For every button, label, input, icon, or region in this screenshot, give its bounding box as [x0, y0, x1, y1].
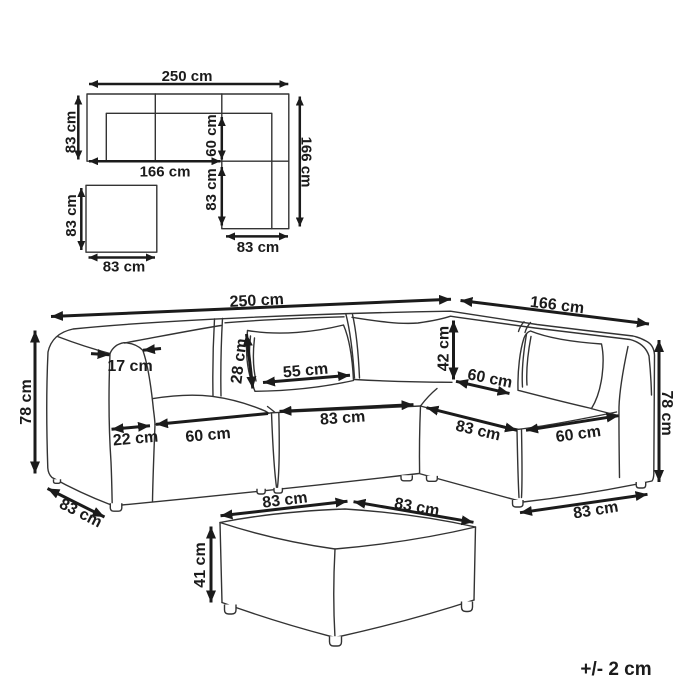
svg-text:+/- 2 cm: +/- 2 cm	[580, 659, 651, 680]
svg-text:166 cm: 166 cm	[140, 164, 191, 181]
svg-text:166 cm: 166 cm	[529, 294, 585, 317]
svg-text:60 cm: 60 cm	[203, 114, 220, 157]
svg-text:250 cm: 250 cm	[162, 68, 213, 85]
svg-text:83 cm: 83 cm	[393, 495, 441, 520]
svg-text:17 cm: 17 cm	[107, 358, 152, 375]
svg-text:83 cm: 83 cm	[319, 408, 365, 428]
svg-text:28 cm: 28 cm	[228, 338, 250, 385]
svg-text:83 cm: 83 cm	[103, 259, 146, 276]
svg-text:41 cm: 41 cm	[192, 542, 209, 587]
svg-text:83 cm: 83 cm	[237, 239, 280, 256]
svg-text:83 cm: 83 cm	[203, 168, 220, 211]
svg-text:60 cm: 60 cm	[555, 423, 602, 446]
svg-text:166 cm: 166 cm	[297, 137, 314, 188]
svg-text:83 cm: 83 cm	[454, 418, 502, 445]
svg-text:83 cm: 83 cm	[261, 489, 308, 511]
svg-text:83 cm: 83 cm	[572, 499, 619, 523]
svg-text:78 cm: 78 cm	[658, 390, 675, 435]
svg-text:22 cm: 22 cm	[112, 429, 159, 450]
svg-text:83 cm: 83 cm	[63, 194, 80, 237]
svg-text:83 cm: 83 cm	[56, 496, 104, 532]
svg-text:78 cm: 78 cm	[18, 379, 35, 424]
svg-text:250 cm: 250 cm	[229, 291, 284, 311]
svg-text:60 cm: 60 cm	[185, 425, 232, 446]
svg-text:42 cm: 42 cm	[436, 326, 453, 371]
svg-text:83 cm: 83 cm	[62, 111, 79, 154]
